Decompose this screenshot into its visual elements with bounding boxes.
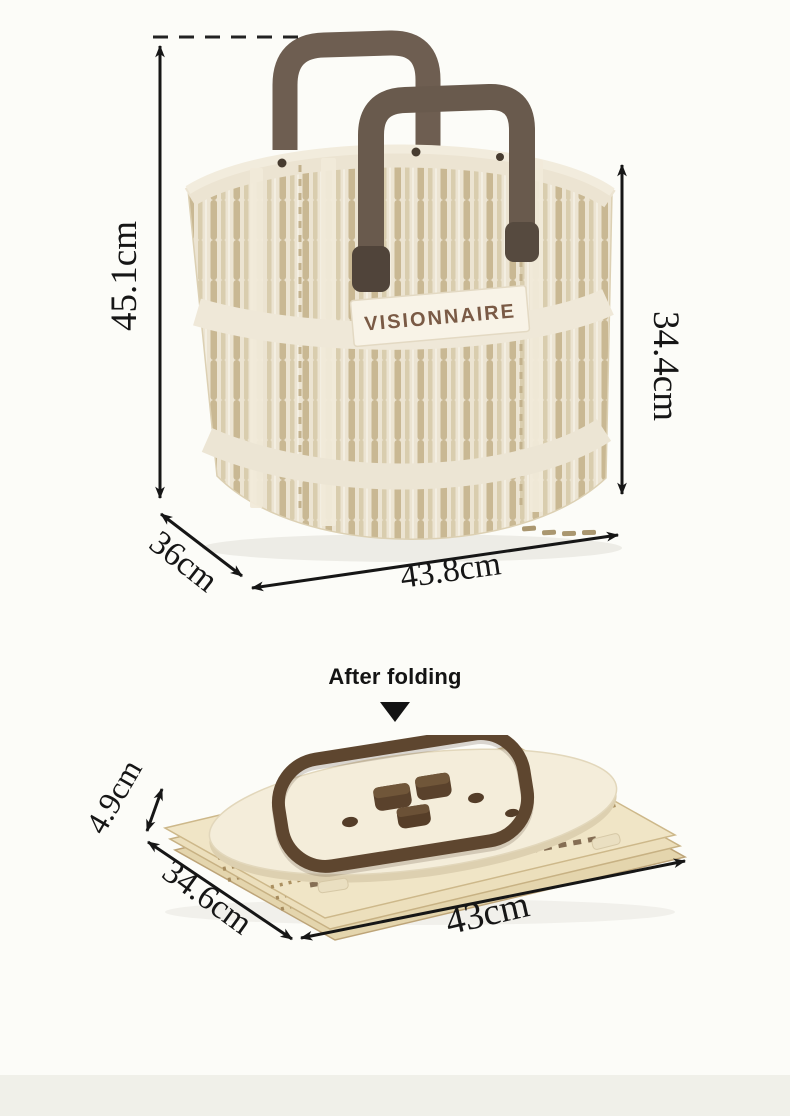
- after-folding-divider: After folding: [0, 664, 790, 722]
- product-dimension-diagram: VISIONNAIRE 45.1cm 34.4cm 36cm 43.8cm Af…: [0, 0, 790, 1116]
- after-folding-label: After folding: [328, 664, 461, 690]
- down-arrow-icon: [380, 702, 410, 722]
- folded-height-arrow: [147, 789, 162, 831]
- assembled-basket-figure: VISIONNAIRE 45.1cm 34.4cm 36cm 43.8cm: [0, 0, 790, 655]
- rivet-hole: [412, 148, 421, 157]
- handle-clip: [505, 222, 539, 262]
- rivet-hole: [496, 153, 504, 161]
- handle-clip: [352, 246, 390, 292]
- footer-band: [0, 1075, 790, 1116]
- vent-slots: [522, 526, 596, 537]
- total-height-label: 45.1cm: [104, 221, 145, 331]
- depth-label: 36cm: [142, 524, 224, 600]
- folded-height-label: 4.9cm: [78, 753, 149, 840]
- rivet-hole: [278, 159, 287, 168]
- wall-height-label: 34.4cm: [645, 311, 686, 421]
- folded-basket-figure: 4.9cm 34.6cm 43cm: [0, 735, 790, 963]
- basket-body: [188, 148, 612, 540]
